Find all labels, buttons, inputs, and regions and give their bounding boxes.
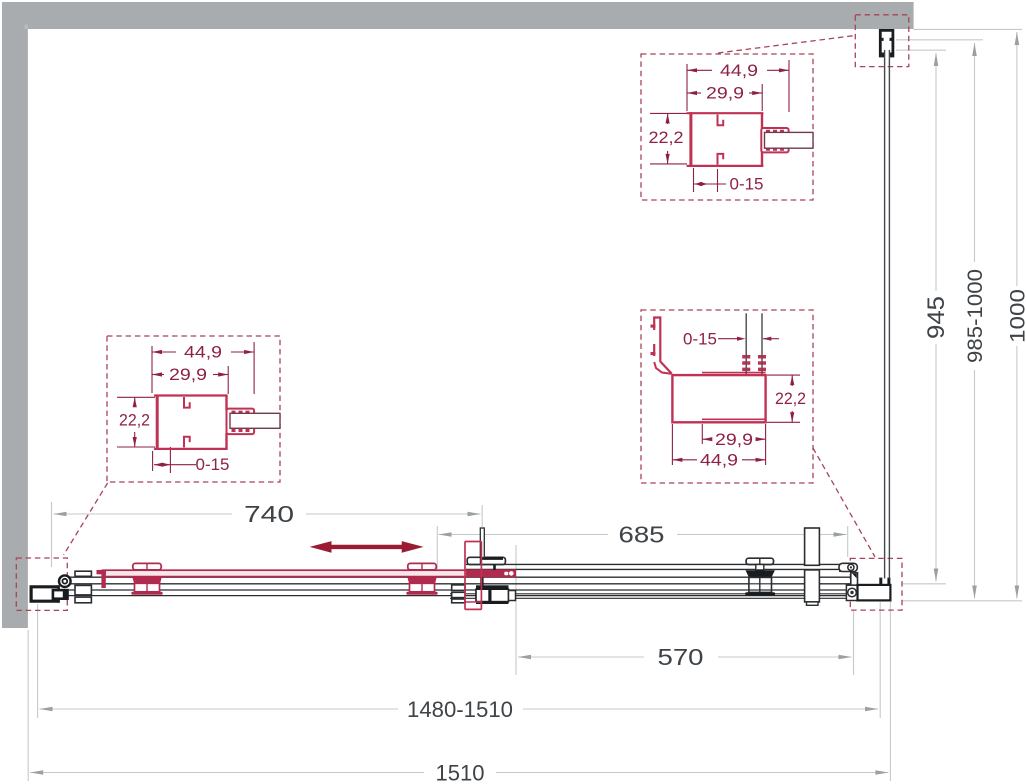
svg-text:740: 740 [244,501,294,527]
svg-text:22,2: 22,2 [775,389,806,408]
svg-text:0-15: 0-15 [683,329,717,348]
svg-text:570: 570 [658,644,704,670]
svg-text:1480-1510: 1480-1510 [407,697,513,722]
svg-text:685: 685 [619,522,665,548]
svg-text:1000: 1000 [1005,289,1026,343]
svg-text:22,2: 22,2 [649,128,684,147]
svg-text:0-15: 0-15 [730,175,764,194]
svg-text:29,9: 29,9 [169,365,207,384]
svg-text:0-15: 0-15 [196,455,230,474]
svg-text:29,9: 29,9 [706,84,744,103]
svg-text:44,9: 44,9 [184,343,222,362]
svg-text:29,9: 29,9 [715,430,753,449]
svg-text:22,2: 22,2 [119,411,150,430]
svg-text:44,9: 44,9 [720,61,758,80]
svg-text:44,9: 44,9 [700,451,738,470]
svg-text:985-1000: 985-1000 [963,269,987,363]
svg-text:1510: 1510 [436,761,485,784]
svg-text:945: 945 [923,296,950,339]
